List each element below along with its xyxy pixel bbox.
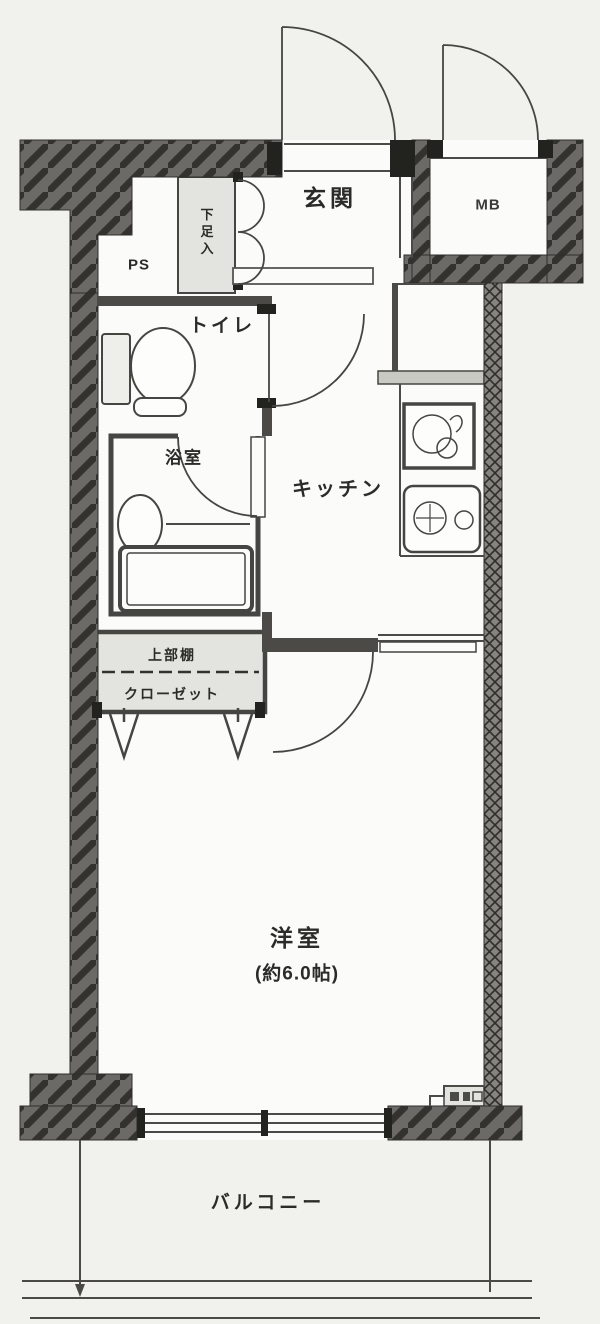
label-upper-shelf: 上部棚 bbox=[148, 645, 196, 665]
label-western-room: 洋室 bbox=[270, 919, 324, 953]
label-toilet: トイレ bbox=[189, 311, 255, 338]
balcony-arrow bbox=[75, 1284, 85, 1297]
floor-plan-drawing bbox=[0, 0, 600, 1324]
label-meter-box: MB bbox=[475, 197, 500, 214]
label-pipe-space: PS bbox=[128, 257, 150, 274]
toilet-bowl bbox=[131, 328, 195, 404]
entrance-step bbox=[233, 268, 373, 284]
label-closet: クローゼット bbox=[124, 684, 220, 704]
bathtub bbox=[120, 547, 252, 611]
toilet-tank bbox=[102, 334, 130, 404]
kitchen-counter-shelf bbox=[378, 371, 484, 384]
label-balcony: バルコニー bbox=[211, 1188, 326, 1215]
label-bathroom: 浴室 bbox=[165, 444, 203, 469]
label-western-room-size: (約6.0帖) bbox=[255, 959, 339, 986]
label-genkan: 玄関 bbox=[303, 179, 357, 213]
label-shoe-cabinet: 下足入 bbox=[197, 208, 216, 259]
kitchen-sink bbox=[404, 404, 474, 468]
label-kitchen: キッチン bbox=[292, 473, 384, 502]
stove bbox=[404, 486, 480, 552]
shared-wall-right bbox=[484, 283, 502, 1106]
room-door-leaf bbox=[380, 642, 476, 652]
wash-basin bbox=[118, 495, 162, 553]
toilet-base bbox=[134, 398, 186, 416]
bathroom-door-leaf bbox=[251, 437, 265, 517]
floor-plan: 玄関 MB PS 下足入 トイレ 浴室 キッチン 上部棚 クローゼット 洋室 (… bbox=[0, 0, 600, 1324]
